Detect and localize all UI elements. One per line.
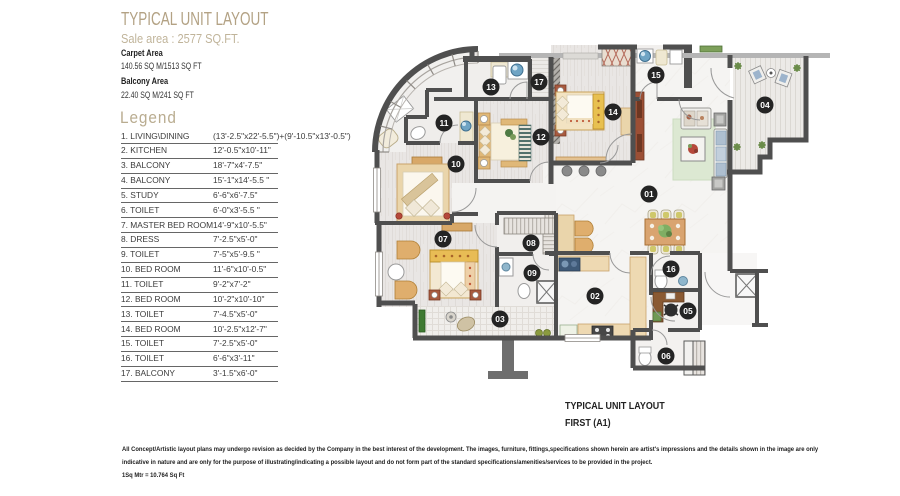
- svg-text:12: 12: [536, 132, 546, 142]
- svg-text:03: 03: [495, 314, 505, 324]
- svg-text:01: 01: [644, 189, 654, 199]
- svg-text:04: 04: [760, 100, 770, 110]
- svg-text:11: 11: [440, 118, 449, 128]
- svg-text:10: 10: [451, 159, 461, 169]
- svg-text:09: 09: [527, 268, 537, 278]
- svg-text:16: 16: [666, 264, 676, 274]
- svg-text:08: 08: [526, 238, 536, 248]
- svg-text:07: 07: [438, 234, 448, 244]
- svg-text:14: 14: [608, 107, 618, 117]
- svg-text:17: 17: [534, 77, 544, 87]
- svg-text:02: 02: [590, 291, 600, 301]
- svg-text:05: 05: [683, 306, 693, 316]
- svg-text:13: 13: [486, 82, 496, 92]
- svg-text:06: 06: [661, 351, 671, 361]
- svg-text:15: 15: [651, 70, 661, 80]
